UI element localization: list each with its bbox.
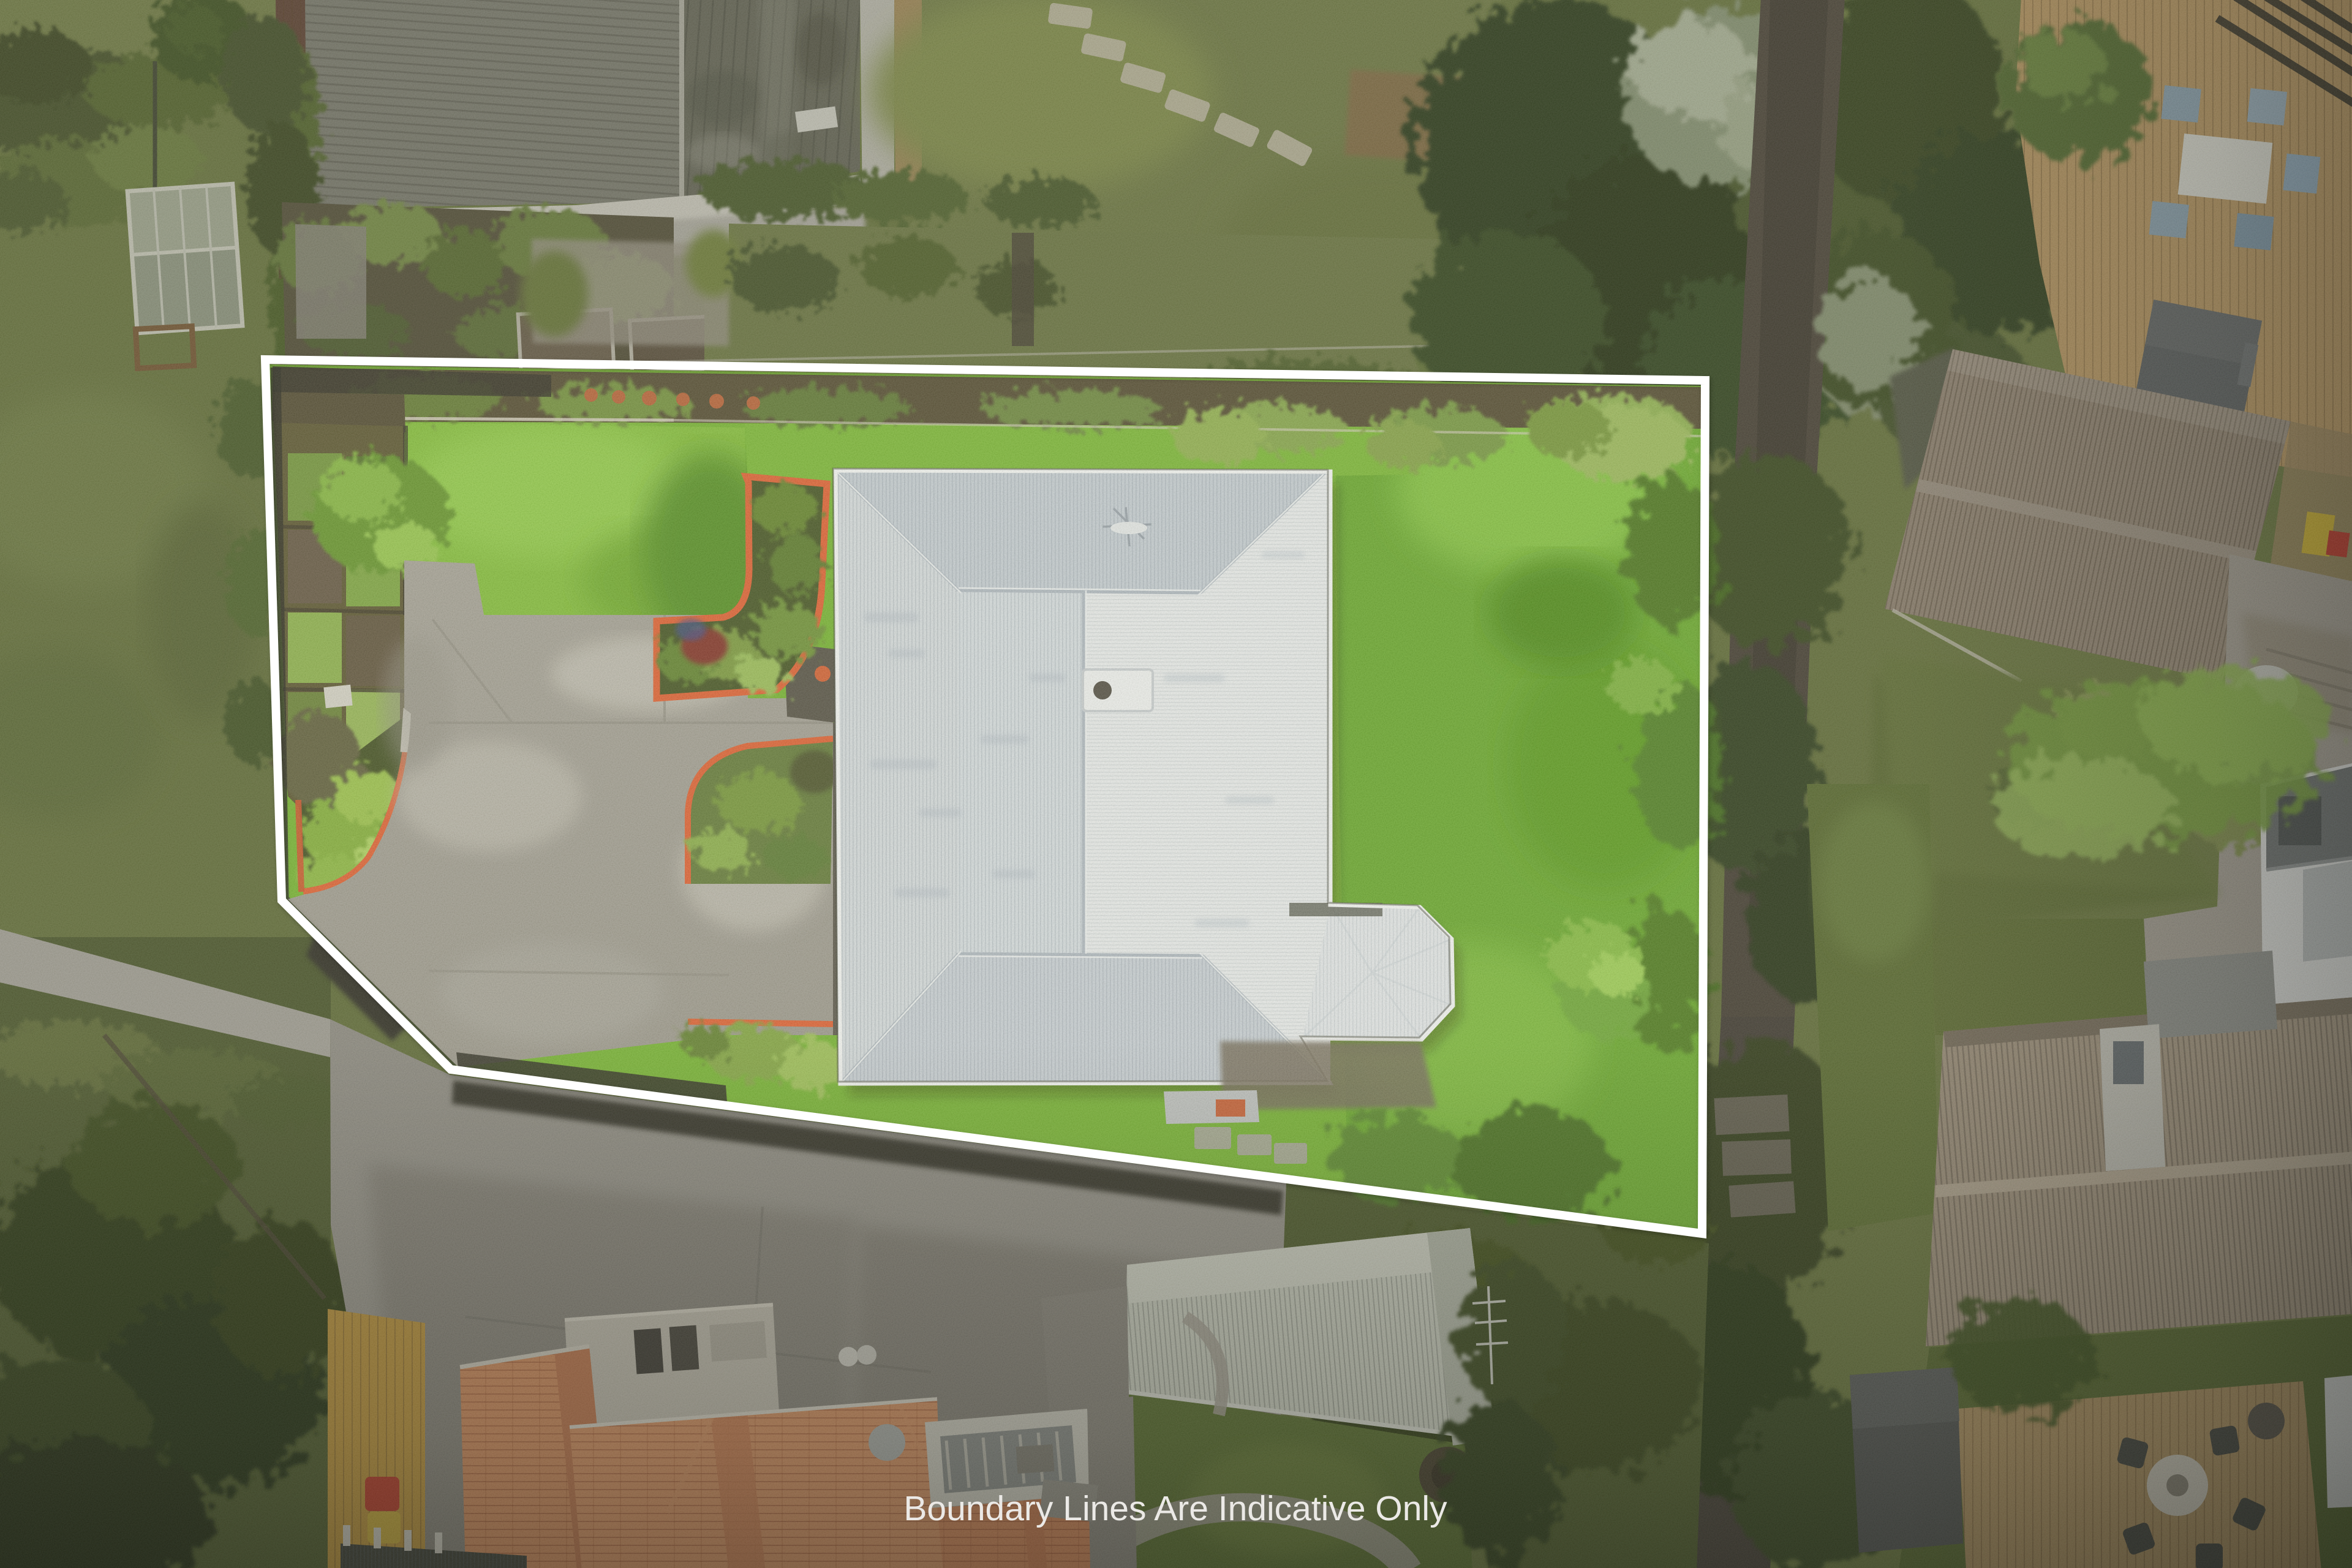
svg-text:Boundary Lines Are Indicative: Boundary Lines Are Indicative Only [903,1489,1447,1528]
